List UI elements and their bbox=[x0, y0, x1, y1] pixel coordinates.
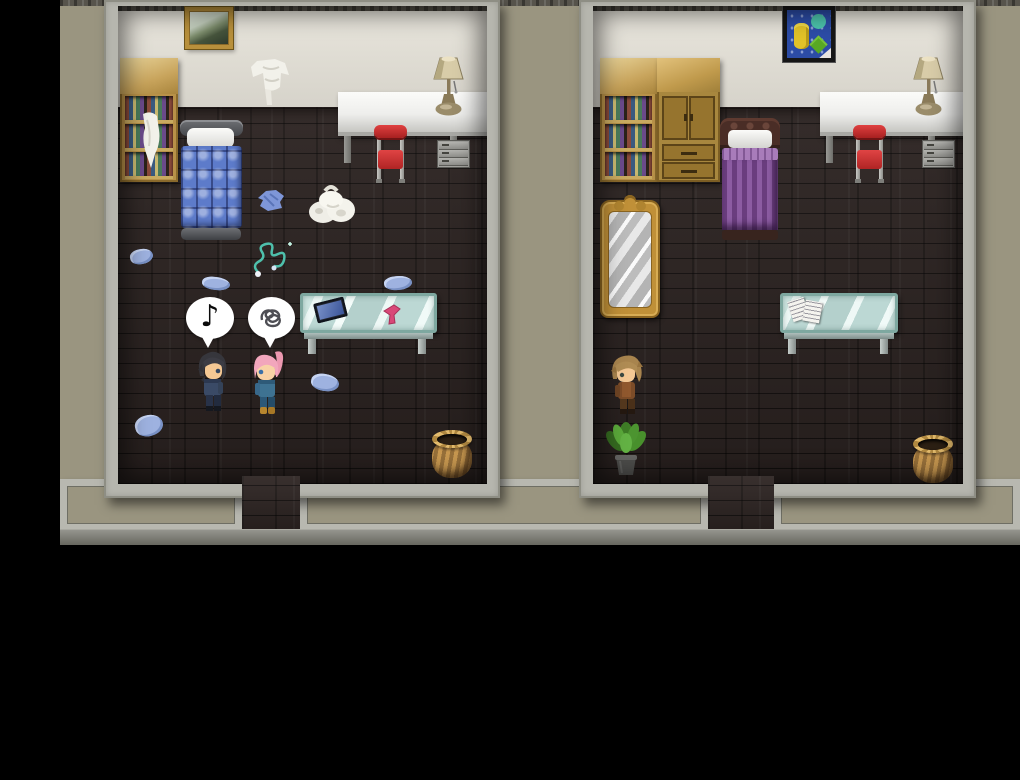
character-brown-haired-man[interactable] bbox=[609, 353, 644, 417]
book-row bbox=[605, 152, 652, 179]
pink-hair-dryer bbox=[382, 303, 402, 327]
music-emote-bubble: ♪ bbox=[186, 297, 234, 339]
table-lamp bbox=[429, 56, 469, 120]
bed-quilt bbox=[181, 146, 242, 228]
mirror-glass bbox=[608, 211, 652, 308]
frustration-emote-bubble bbox=[248, 297, 295, 339]
glass-table bbox=[780, 293, 898, 353]
wardrobe bbox=[657, 58, 720, 182]
scattered-garment bbox=[129, 247, 155, 266]
bed-foot-rail bbox=[181, 228, 241, 240]
building-baseboard bbox=[60, 529, 1020, 545]
character-dark-haired-man[interactable] bbox=[196, 350, 228, 412]
painting-circle bbox=[811, 14, 826, 29]
bed-blanket bbox=[722, 160, 778, 230]
table-lamp bbox=[909, 56, 949, 120]
drawer bbox=[924, 150, 953, 158]
chair-seat bbox=[857, 150, 882, 169]
book-row bbox=[605, 96, 652, 123]
wicker-basket bbox=[913, 435, 953, 483]
red-chair bbox=[853, 125, 886, 183]
left-room-doorway[interactable] bbox=[242, 476, 300, 531]
drawer bbox=[924, 142, 953, 150]
glass-table-bar bbox=[784, 333, 894, 339]
mirror-crown bbox=[624, 195, 636, 207]
abstract-painting bbox=[783, 6, 835, 62]
drawer bbox=[439, 142, 468, 150]
glass-table-leg bbox=[418, 339, 426, 354]
red-chair bbox=[374, 125, 407, 183]
left-room: ♪ bbox=[118, 6, 487, 484]
drawer-cabinet bbox=[437, 140, 470, 168]
drawer-cabinet bbox=[922, 140, 955, 168]
bookshelf bbox=[600, 58, 657, 182]
chair-foot bbox=[399, 179, 405, 183]
chair-foot bbox=[878, 179, 884, 183]
painting-cylinder bbox=[794, 23, 809, 49]
glass-table-bar bbox=[304, 333, 433, 339]
chair-foot bbox=[376, 179, 382, 183]
book-row bbox=[605, 124, 652, 151]
shelf-cloth bbox=[137, 112, 163, 170]
glass-table bbox=[300, 293, 437, 355]
counter-leg bbox=[826, 136, 833, 163]
wardrobe-knob bbox=[690, 114, 693, 121]
right-room-frame bbox=[579, 0, 976, 498]
standing-mirror bbox=[600, 200, 660, 318]
music-note-icon: ♪ bbox=[200, 302, 219, 332]
game-viewport: ♪ bbox=[0, 0, 1020, 780]
wardrobe-drawer bbox=[662, 144, 715, 161]
character-pink-haired-woman[interactable] bbox=[249, 350, 286, 415]
wicker-basket bbox=[432, 430, 472, 478]
purple-bed bbox=[720, 118, 780, 240]
glass-table-leg bbox=[308, 339, 316, 354]
right-room-doorway[interactable] bbox=[708, 476, 774, 531]
chair-back bbox=[853, 125, 886, 138]
left-room-frame: ♪ bbox=[104, 0, 500, 498]
glass-table-leg bbox=[788, 339, 796, 354]
glass-table-leg bbox=[880, 339, 888, 354]
bed-pillow bbox=[187, 128, 234, 148]
scattered-garment bbox=[133, 412, 165, 440]
scattered-garment bbox=[310, 372, 340, 393]
basket-opening bbox=[437, 434, 467, 445]
chair-seat bbox=[378, 150, 403, 169]
blue-shirt bbox=[254, 188, 287, 213]
scattered-garment bbox=[383, 275, 412, 291]
landscape-painting bbox=[185, 7, 233, 49]
scribble-icon bbox=[256, 304, 288, 332]
drawer bbox=[439, 150, 468, 158]
wardrobe-knob bbox=[684, 114, 687, 121]
drawer bbox=[439, 158, 468, 166]
counter-leg bbox=[344, 136, 351, 163]
basket-opening bbox=[918, 439, 948, 450]
wardrobe-drawer bbox=[662, 162, 715, 179]
bookshelf-top bbox=[600, 58, 657, 94]
clothes-pile bbox=[303, 183, 359, 225]
bookshelf-top bbox=[120, 58, 178, 94]
wardrobe-top bbox=[657, 58, 720, 92]
bed-pillow bbox=[728, 130, 772, 148]
chair-foot bbox=[855, 179, 861, 183]
papers bbox=[802, 300, 822, 324]
blue-bed bbox=[180, 120, 243, 240]
potted-plant bbox=[603, 421, 649, 477]
hanging-laundry bbox=[245, 57, 293, 109]
scattered-garment bbox=[201, 276, 230, 292]
teal-necklace bbox=[250, 236, 296, 280]
bed-foot-rail bbox=[722, 230, 778, 240]
chair-back bbox=[374, 125, 407, 138]
right-room bbox=[593, 6, 963, 484]
drawer bbox=[924, 158, 953, 166]
